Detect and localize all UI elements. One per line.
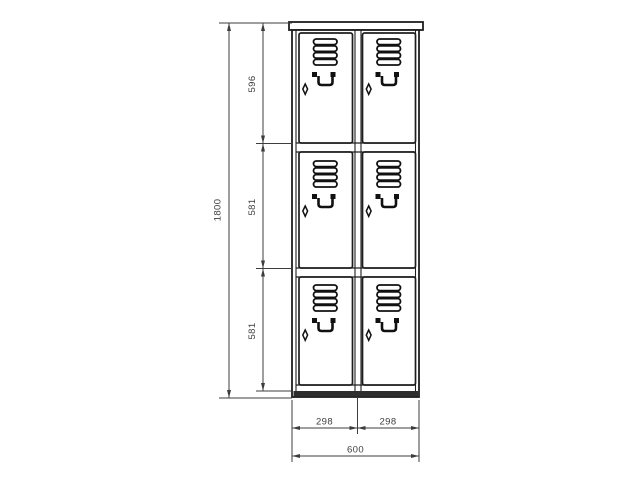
dim-label-section-3: 581 [247,322,258,339]
locker-door-r3-c1 [299,277,353,385]
locker-door-r2-c1 [299,152,353,268]
locker-door-r1-c2 [363,33,416,143]
dim-label-section-1: 596 [247,75,258,92]
dim-total-width: 600 [292,445,419,459]
dim-door-widths: 298 298 [292,417,419,431]
dim-total-height: 1800 [213,23,232,398]
cabinet-top-cap [289,22,423,30]
locker-technical-drawing: 1800 596 581 581 298 298 [0,0,640,480]
drawing-canvas: 1800 596 581 581 298 298 [0,0,640,480]
locker-door-r3-c2 [363,277,416,385]
dim-label-door-width-left: 298 [316,417,333,428]
locker-cabinet [289,22,423,397]
dim-label-total-width: 600 [347,445,364,456]
locker-door-r2-c2 [363,152,416,268]
dim-label-total-height: 1800 [213,199,224,222]
dim-label-section-2: 581 [247,198,258,215]
locker-door-r1-c1 [299,33,353,143]
dim-label-door-width-right: 298 [379,417,396,428]
cabinet-base [294,391,419,397]
dim-section-heights: 596 581 581 [247,23,265,391]
